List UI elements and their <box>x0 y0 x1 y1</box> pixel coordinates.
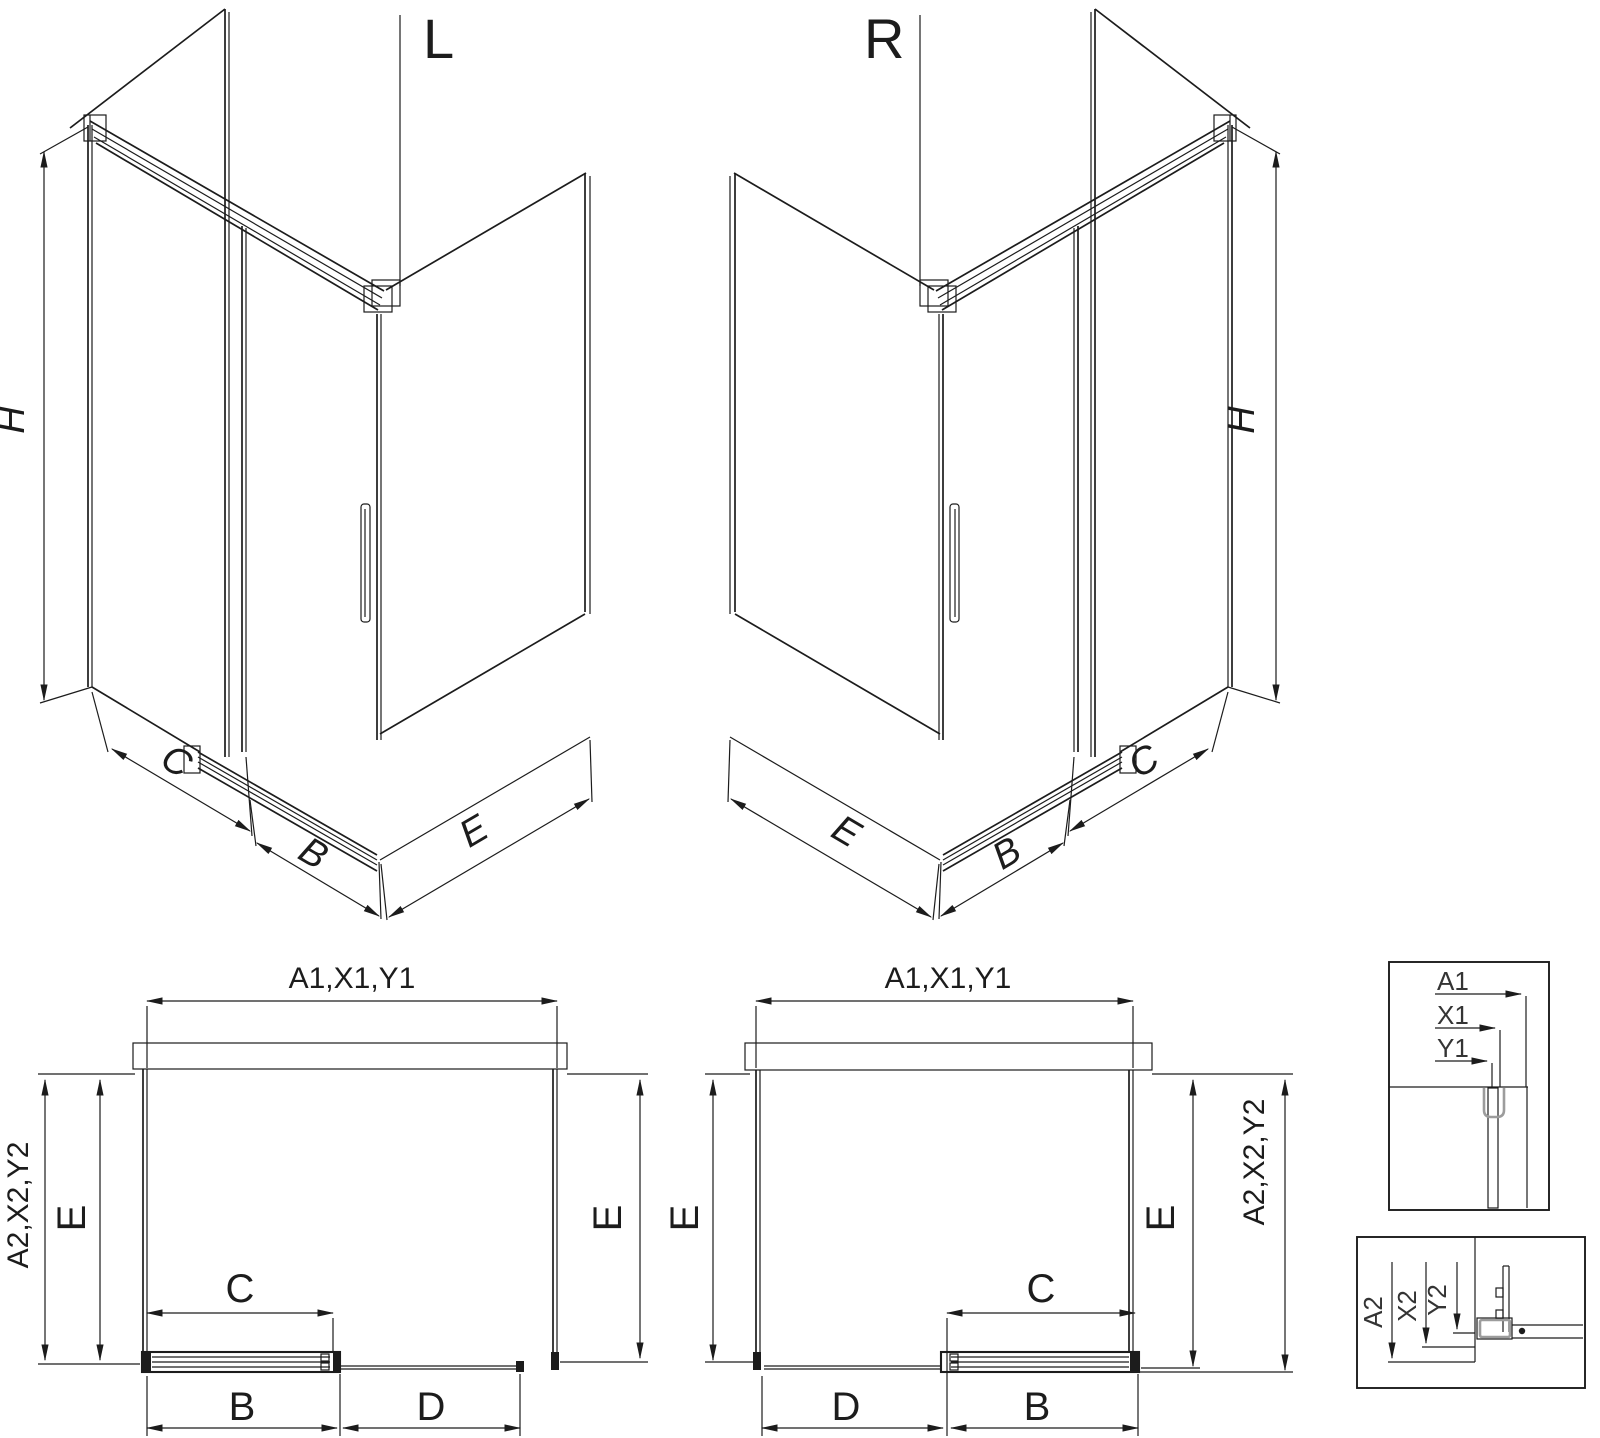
plan-right-right-depth-label: E <box>1139 1205 1183 1232</box>
plan-right-fixed-track <box>764 1366 941 1369</box>
detail-top-x1-label: X1 <box>1437 1000 1469 1030</box>
iso-right-back-panel <box>1091 9 1250 757</box>
plan-left-door-label: B <box>229 1385 256 1429</box>
iso-right-dim-door: B <box>939 800 1070 919</box>
plan-left-right-end-block <box>551 1352 559 1370</box>
plan-left-door-assembly <box>142 1352 341 1372</box>
iso-left-dim-fixed: C <box>92 692 252 836</box>
plan-left-left-dims: A2,X2,Y2 E <box>2 1074 140 1364</box>
plan-left-left-depth-label: E <box>50 1205 94 1232</box>
detail-bottom-x2-label: X2 <box>1392 1290 1422 1322</box>
detail-top-a1-label: A1 <box>1437 966 1469 996</box>
detail-bottom-y2-label: Y2 <box>1422 1284 1452 1316</box>
detail-top-y1-label: Y1 <box>1437 1033 1469 1063</box>
plan-view-left: A1,X1,Y1 <box>2 962 648 1436</box>
detail-top-clamp-profile <box>1484 1088 1504 1117</box>
iso-left-sliding-door <box>242 226 370 752</box>
iso-left-dim-door: B <box>250 800 381 919</box>
plan-left-bottom-dims: B D <box>147 1374 520 1436</box>
plan-view-right: A1,X1,Y1 C <box>663 962 1293 1436</box>
plan-right-wall-hatch <box>745 1043 1152 1070</box>
iso-left-top-rail <box>84 115 384 310</box>
plan-right-left-depth-label: E <box>663 1205 707 1232</box>
plan-left-right-dims: E <box>560 1074 648 1362</box>
detail-box-top: A1 X1 Y1 <box>1389 962 1549 1210</box>
plan-left-right-depth-label: E <box>586 1205 630 1232</box>
plan-right-outer-right-label: A2,X2,Y2 <box>1238 1099 1271 1226</box>
plan-left-width-label: A1,X1,Y1 <box>289 962 416 995</box>
plan-left-top-dim <box>147 1001 557 1068</box>
iso-right-sliding-door <box>950 226 1078 752</box>
plan-left-travel-label: C <box>226 1267 255 1311</box>
iso-view-right: R <box>728 7 1280 920</box>
plan-right-fixed-label: D <box>832 1385 861 1429</box>
iso-right-dim-h-label: H <box>1221 406 1263 434</box>
plan-left-outer-left-label: A2,X2,Y2 <box>2 1142 35 1269</box>
plan-right-right-dims: E A2,X2,Y2 <box>1139 1074 1293 1372</box>
plan-right-bottom-dims: D B <box>762 1374 1138 1436</box>
plan-left-fixed-track <box>340 1361 524 1372</box>
plan-left-wall-hatch <box>133 1043 567 1069</box>
plan-right-travel-label: C <box>1027 1267 1056 1311</box>
iso-right-corner-post <box>939 314 943 740</box>
iso-left-title: L <box>423 7 454 70</box>
iso-left-dim-depth: E <box>381 740 592 920</box>
iso-right-dim-fixed: C <box>1068 692 1228 836</box>
plan-right-door-wall-cap <box>1130 1352 1139 1372</box>
plan-right-door-assembly <box>941 1352 1139 1372</box>
plan-right-left-end-block <box>753 1352 761 1370</box>
iso-right-title: R <box>864 7 904 70</box>
detail-bottom-profile-section <box>1477 1266 1583 1339</box>
technical-drawing-sheet: L <box>0 0 1600 1438</box>
shower-enclosure-diagram: L <box>0 0 1600 1438</box>
plan-left-track-end-block <box>516 1361 524 1372</box>
iso-view-left: L <box>0 7 592 920</box>
plan-left-door-lead-cap <box>333 1352 341 1372</box>
iso-right-return-wall <box>730 173 940 860</box>
plan-left-dim-travel: C <box>147 1267 333 1352</box>
iso-left-corner-post <box>377 314 381 740</box>
iso-left-dim-height: H <box>0 127 92 703</box>
iso-right-side-wall <box>1120 125 1232 752</box>
plan-right-left-dims: E <box>663 1074 753 1362</box>
plan-left-door-wall-cap <box>142 1352 151 1372</box>
detail-top-glass-section <box>1488 1088 1498 1208</box>
iso-left-back-panel <box>70 9 229 757</box>
iso-left-dim-h-label: H <box>0 406 33 434</box>
plan-right-top-dim <box>756 1001 1133 1068</box>
iso-right-top-rail <box>936 115 1236 310</box>
iso-right-dim-height: H <box>1221 127 1280 703</box>
plan-left-side-glass <box>143 1069 559 1370</box>
detail-bottom-a2-label: A2 <box>1358 1296 1388 1328</box>
detail-box-bottom: A2 X2 Y2 <box>1357 1237 1585 1388</box>
iso-right-dim-depth: E <box>728 740 939 920</box>
plan-right-width-label: A1,X1,Y1 <box>885 962 1012 995</box>
detail-bottom-screw <box>1519 1328 1525 1334</box>
iso-left-return-wall <box>380 173 590 860</box>
iso-left-side-wall <box>88 125 200 752</box>
plan-right-door-label: B <box>1024 1385 1051 1429</box>
iso-left-dim-c-label: C <box>154 737 200 787</box>
iso-right-dim-c-label: C <box>1121 736 1167 786</box>
plan-left-fixed-label: D <box>417 1385 446 1429</box>
plan-right-side-glass <box>753 1070 1133 1370</box>
